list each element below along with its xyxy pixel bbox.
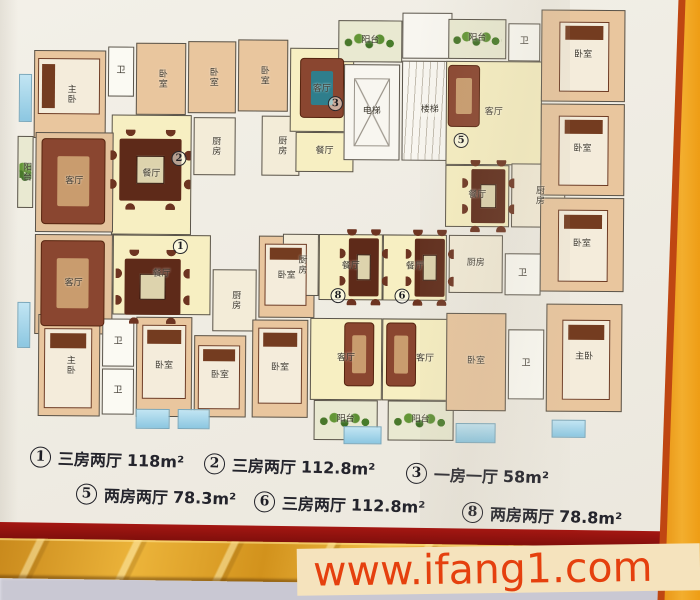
legend-unit-type: 两房两厅 bbox=[490, 501, 555, 528]
room-living-room: 客厅 bbox=[445, 61, 542, 166]
room-label: 厨房 bbox=[533, 185, 543, 205]
room-bathroom: 卫 bbox=[508, 23, 540, 61]
window bbox=[455, 423, 495, 443]
dining-table bbox=[471, 169, 505, 223]
legend-item: 2三房两厅112.8m² bbox=[204, 451, 376, 481]
legend-item: 8两房两厅78.8m² bbox=[462, 500, 623, 531]
legend-unit-number: 8 bbox=[462, 501, 484, 523]
legend-unit-area: 78.3m² bbox=[173, 487, 237, 508]
legend-unit-number: 1 bbox=[30, 446, 52, 468]
legend-unit-type: 三房两厅 bbox=[282, 490, 347, 516]
room-label: 楼梯 bbox=[419, 105, 441, 117]
legend-unit-area: 118m² bbox=[127, 450, 185, 471]
room-label: 卧室 bbox=[467, 357, 485, 367]
legend-unit-type: 三房两厅 bbox=[58, 445, 123, 471]
room-label: 客厅 bbox=[485, 108, 503, 118]
room-dining-room: 餐厅 bbox=[445, 165, 509, 227]
room-label: 餐厅 bbox=[468, 191, 486, 201]
room-label: 厨房 bbox=[467, 259, 485, 269]
photo-scene: 主卧卫卧室卧室餐厅厨房厨房卧室客厅餐厅阳台电梯楼梯阳台卫客厅餐厅厨房卧室卧室卧室… bbox=[0, 0, 700, 600]
room-label: 阳台 bbox=[468, 34, 486, 44]
legend-unit-type: 一房一厅 bbox=[434, 461, 499, 487]
legend-item: 6三房两厅112.8m² bbox=[254, 489, 426, 519]
legend-item: 3一房一厅58m² bbox=[406, 461, 550, 490]
legend-unit-number: 5 bbox=[76, 483, 98, 505]
dining-table bbox=[415, 239, 445, 297]
room-label: 卫 bbox=[518, 270, 527, 280]
room-kitchen: 厨房 bbox=[511, 163, 565, 227]
floorplan-poster: 主卧卫卧室卧室餐厅厨房厨房卧室客厅餐厅阳台电梯楼梯阳台卫客厅餐厅厨房卧室卧室卧室… bbox=[0, 0, 700, 600]
legend-unit-type: 两房两厅 bbox=[104, 482, 169, 508]
room-bathroom: 卫 bbox=[505, 253, 541, 295]
legend-unit-area: 78.8m² bbox=[559, 506, 623, 528]
room-label: 卫 bbox=[521, 360, 530, 370]
room-kitchen: 厨房 bbox=[449, 235, 503, 293]
legend-unit-type: 三房两厅 bbox=[232, 452, 297, 478]
legend-unit-number: 2 bbox=[204, 453, 226, 475]
legend-unit-area: 112.8m² bbox=[301, 457, 376, 479]
watermark-text: www.ifang1.com bbox=[313, 547, 653, 593]
legend-item: 5两房两厅78.3m² bbox=[76, 481, 237, 511]
legend-unit-area: 112.8m² bbox=[351, 495, 426, 517]
unit-legend: 1三房两厅118m²2三房两厅112.8m²3一房一厅58m²5两房两厅78.3… bbox=[0, 0, 700, 600]
room-bedroom: 卧室 bbox=[446, 313, 507, 411]
watermark-banner: www.ifang1.com bbox=[297, 543, 700, 596]
legend-item: 1三房两厅118m² bbox=[30, 444, 185, 473]
legend-unit-number: 3 bbox=[406, 462, 428, 484]
legend-unit-area: 58m² bbox=[503, 466, 550, 487]
room-label: 卫 bbox=[520, 38, 529, 48]
sofa bbox=[448, 65, 480, 127]
unit-number-5: 5 bbox=[454, 133, 469, 148]
room-balcony: 阳台 bbox=[448, 19, 506, 59]
room-bathroom: 卫 bbox=[508, 329, 544, 399]
legend-unit-number: 6 bbox=[254, 491, 276, 513]
